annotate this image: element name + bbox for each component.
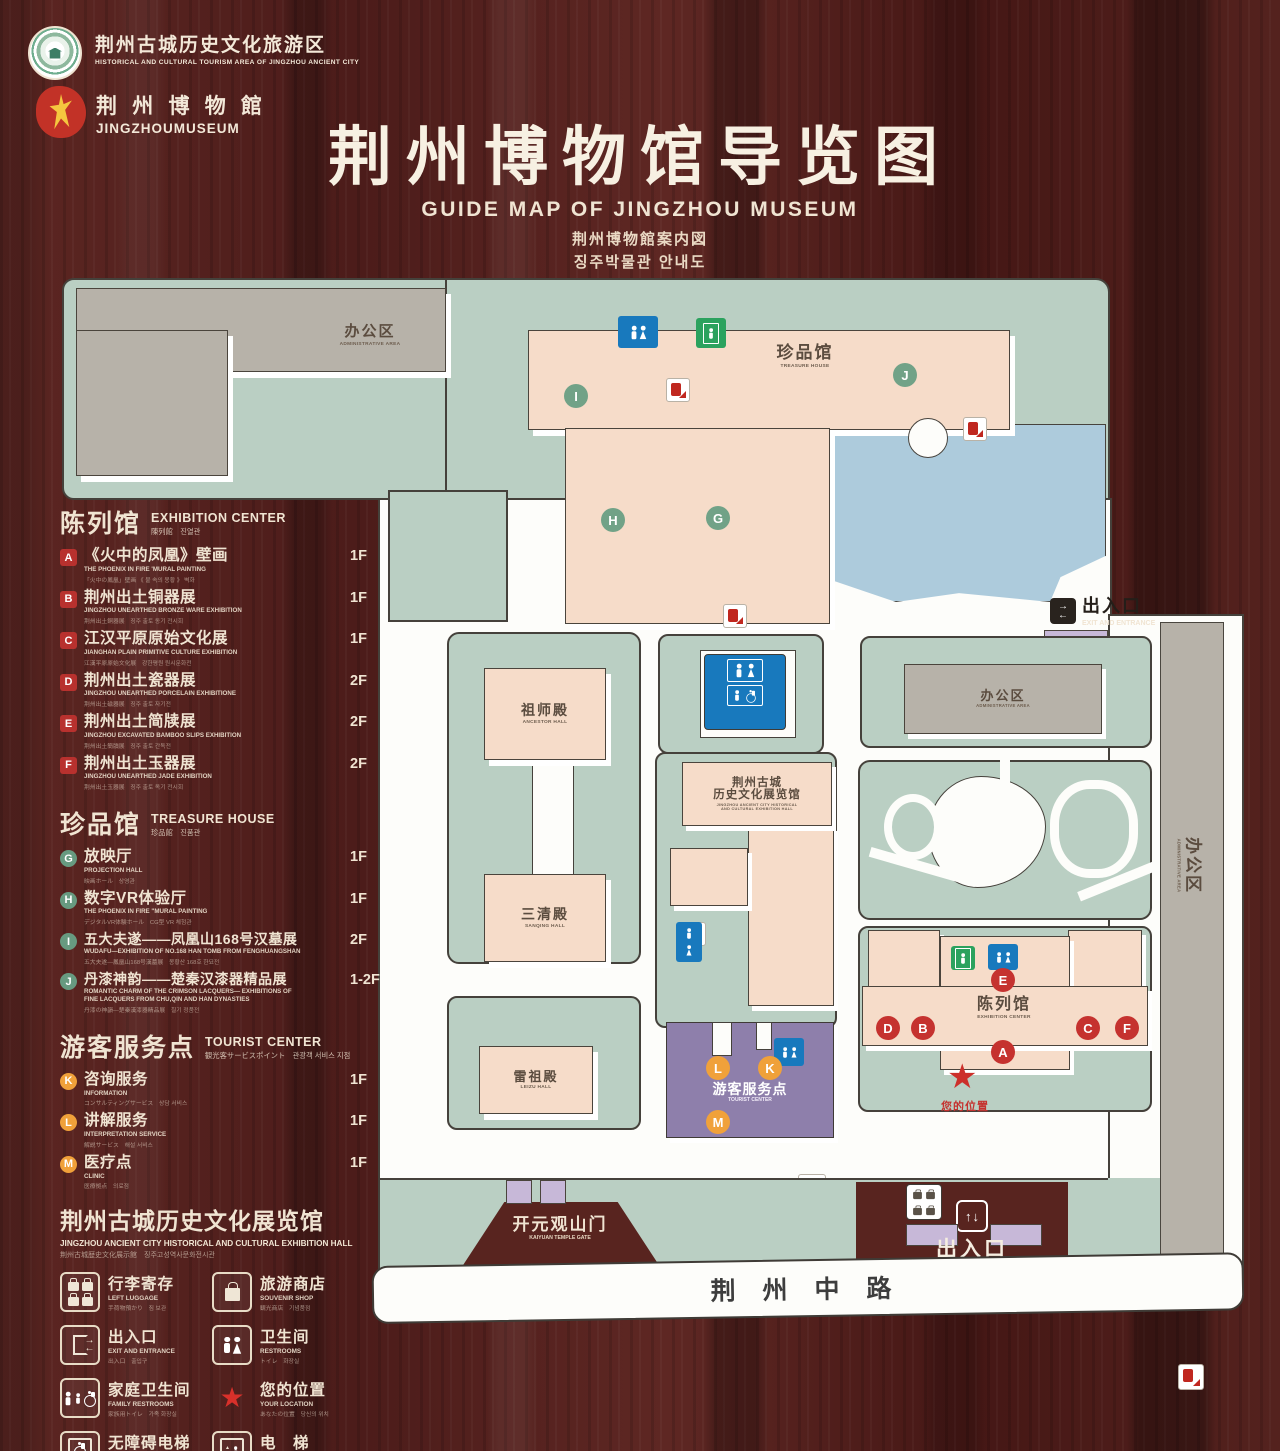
tourist-center-label-en: TOURIST CENTER — [688, 1098, 812, 1104]
section-title-zh: 陈列馆 — [60, 504, 141, 540]
item-en: THE PHOENIX IN FIRE 'MURAL PAINTING — [84, 566, 228, 574]
item-floor: 1F — [350, 548, 386, 564]
item-en: JINGZHOU UNEARTHED JADE EXHIBITION — [84, 773, 212, 781]
item-zh: 讲解服务 — [84, 1113, 166, 1129]
item-sub: 「火中の鳳凰」壁画 《 불 속의 봉황 》 벽화 — [84, 575, 228, 584]
tourist-center-notch — [756, 1022, 772, 1050]
treasure-house-arc — [908, 418, 948, 458]
admin-topleft-label-zh: 办公区 — [300, 324, 440, 341]
item-en: JINGZHOU UNEARTHED PORCELAIN EXHIBITIONE — [84, 690, 236, 698]
item-en: THE PHOENIX IN FIRE "MURAL PAINTING — [84, 908, 207, 916]
item-badge: F — [60, 757, 77, 774]
left-luggage-icon — [906, 1184, 942, 1220]
item-badge: J — [60, 973, 77, 990]
map-marker-F: F — [1115, 1016, 1139, 1040]
symbol-zh: 家庭卫生间 — [108, 1378, 191, 1400]
symbol-zh: 旅游商店 — [260, 1272, 326, 1294]
legend-panel: 陈列馆 EXHIBITION CENTER 陳列館 진열관 A 《火中的凤凰》壁… — [60, 496, 386, 1451]
map-marker-G: G — [706, 506, 730, 530]
legend-item-G: G 放映厅PROJECTION HALL映画ホール 상영관 1F — [60, 849, 386, 885]
map-marker-L: L — [706, 1056, 730, 1080]
section-title-sub: 陳列館 진열관 — [151, 527, 286, 537]
item-badge: L — [60, 1114, 77, 1131]
tourist-center-notch — [712, 1022, 732, 1056]
item-en: CLINIC — [84, 1173, 132, 1181]
legend-section-treasure-house: 珍品馆 TREASURE HOUSE 珍品館 진품관 — [60, 805, 386, 841]
garden-path — [1000, 758, 1010, 792]
item-sub: 解説サービス 해설 서비스 — [84, 1140, 166, 1149]
item-zh: 荆州出土玉器展 — [84, 756, 212, 772]
map-marker-J: J — [893, 363, 917, 387]
exhibition-center-label-en: EXHIBITION CENTER — [944, 1015, 1064, 1020]
left-luggage-icon — [60, 1272, 100, 1312]
symbol-zh: 卫生间 — [260, 1325, 310, 1347]
left-luggage-icon — [963, 417, 987, 441]
legend-item-K: K 咨询服务INFORMATIONコンサルティングサービス 상담 서비스 1F — [60, 1072, 386, 1108]
item-sub: 映画ホール 상영관 — [84, 876, 142, 885]
building-exhibition-center-armL — [868, 930, 940, 988]
item-en: JINGZHOU UNEARTHED BRONZE WARE EXHIBITIO… — [84, 607, 242, 615]
symbol-sub: 観光商店 기념품점 — [260, 1303, 326, 1312]
legend-section-exhibition-center: 陈列馆 EXHIBITION CENTER 陳列館 진열관 — [60, 504, 386, 540]
item-en: ROMANTIC CHARM OF THE CRIMSON LACQUERS— … — [84, 988, 304, 1004]
item-zh: 丹漆神韵——楚秦汉漆器精品展 — [84, 972, 304, 987]
item-zh: 《火中的凤凰》壁画 — [84, 548, 228, 564]
map-marker-C: C — [1076, 1016, 1100, 1040]
legend-item-B: B 荆州出土铜器展JINGZHOU UNEARTHED BRONZE WARE … — [60, 590, 386, 626]
symbol-sub: あなたの位置 당신의 위치 — [260, 1409, 329, 1418]
symbol-en: SOUVENIR SHOP — [260, 1295, 326, 1302]
section-title-sub: 観光客サービスポイント 관광객 서비스 지점 — [205, 1051, 350, 1061]
building-sanqing-hall: 三清殿 SANQING HALL — [484, 874, 606, 962]
exhibition-hall-label-en2: AND CULTURAL EXHIBITION HALL — [713, 807, 801, 811]
item-badge: E — [60, 715, 77, 732]
left-luggage-icon — [723, 604, 747, 628]
left-luggage-icon — [1178, 1364, 1204, 1390]
path-corridor — [532, 756, 574, 882]
restroom-mf-icon — [727, 659, 763, 682]
gate-pillar — [540, 1180, 566, 1204]
page-subtitle-en: GUIDE MAP OF JINGZHOU MUSEUM — [180, 198, 1100, 222]
symbol-en: EXIT AND ENTRANCE — [108, 1348, 175, 1355]
item-sub: 五大夫遂—鳳凰山168号漢墓展 봉황산 168호 한묘전 — [84, 957, 300, 966]
legend-restrooms: 卫生间RESTROOMSトイレ 화장실 — [212, 1325, 380, 1369]
page-subtitle-jp: 荆州博物館案内図 — [180, 228, 1100, 249]
symbol-sub: 家族用トイレ 가족 화장실 — [108, 1409, 191, 1418]
gate-pillar — [506, 1180, 532, 1204]
elevator-icon: ▲▼ — [212, 1431, 252, 1451]
item-badge: C — [60, 632, 77, 649]
building-exhibition-hall-bar: 荆州古城 历史文化展览馆 JINGZHOU ANCIENT CITY HISTO… — [682, 762, 832, 826]
item-en: PROJECTION HALL — [84, 867, 142, 875]
office-strip-label-en: ADMINISTRATIVE AREA — [1177, 826, 1182, 906]
page-title: 荆州博物馆导览图 — [180, 106, 1100, 198]
map-marker-K: K — [758, 1056, 782, 1080]
gate-label-zh: 开元观山门 — [470, 1216, 650, 1235]
left-luggage-icon — [666, 378, 690, 402]
map-marker-E: E — [991, 968, 1015, 992]
item-en: JIANGHAN PLAIN PRIMITIVE CULTURE EXHIBIT… — [84, 649, 237, 657]
symbol-zh: 出入口 — [108, 1325, 175, 1347]
item-floor: 1-2F — [350, 972, 386, 988]
shopping-bag-icon — [212, 1272, 252, 1312]
item-badge: K — [60, 1073, 77, 1090]
item-sub: コンサルティングサービス 상담 서비스 — [84, 1098, 187, 1107]
item-badge: B — [60, 591, 77, 608]
exhibition-hall-label-zh2: 历史文化展览馆 — [713, 789, 801, 802]
item-sub: 荆州出土銅器展 징주 출토 동기 전시회 — [84, 616, 242, 625]
area-logo-emblem-icon — [28, 26, 82, 80]
section-title-en: TREASURE HOUSE — [151, 812, 275, 826]
map-marker-A: A — [991, 1040, 1015, 1064]
exhibition-hall-label-zh1: 荆州古城 — [713, 777, 801, 790]
office-strip-label: 办公区 ADMINISTRATIVE AREA — [1177, 826, 1208, 906]
item-floor: 1F — [350, 590, 386, 606]
map-marker-M: M — [706, 1110, 730, 1134]
symbol-en: LEFT LUGGAGE — [108, 1295, 174, 1302]
item-sub: 荆州出土簡牘展 징주 출토 간독전 — [84, 741, 241, 750]
section-title-zh: 游客服务点 — [60, 1028, 195, 1064]
accessible-elevator-icon — [60, 1431, 100, 1451]
family-restroom-icon — [60, 1378, 100, 1418]
exhibition-center-label: 陈列馆 EXHIBITION CENTER — [944, 996, 1064, 1020]
symbol-sub: トイレ 화장실 — [260, 1356, 310, 1365]
legend-left-luggage: 行李寄存LEFT LUGGAGE手荷物預かり 짐 보관 — [60, 1272, 212, 1316]
exit-icon: →← — [60, 1325, 100, 1365]
road-label: 荆 州 中 路 — [710, 1269, 901, 1308]
restroom-icon — [704, 654, 786, 730]
item-sub: 荆州出土玉器展 징주 출토 옥기 전시회 — [84, 782, 212, 791]
map-zone-left-column — [388, 490, 508, 622]
admin-right-label-en: ADMINISTRATIVE AREA — [976, 704, 1030, 709]
map-marker-H: H — [601, 508, 625, 532]
treasure-house-label-zh: 珍品馆 — [745, 344, 865, 363]
item-en: INTERPRETATION SERVICE — [84, 1131, 166, 1139]
office-strip — [1160, 622, 1224, 1290]
restroom-icon — [988, 944, 1018, 970]
leizu-hall-label-en: LEIZU HALL — [513, 1085, 558, 1090]
legend-item-E: E 荆州出土简牍展JINGZHOU EXCAVATED BAMBOO SLIPS… — [60, 714, 386, 750]
museum-logo — [36, 86, 86, 138]
item-floor: 1F — [350, 1113, 386, 1129]
item-zh: 五大夫遂——凤凰山168号汉墓展 — [84, 932, 300, 947]
hall-title-en: JINGZHOU ANCIENT CITY HISTORICAL AND CUL… — [60, 1239, 386, 1248]
exit-icon: →← — [1050, 598, 1076, 624]
treasure-house-label-en: TREASURE HOUSE — [745, 364, 865, 369]
item-badge: H — [60, 892, 77, 909]
item-badge: A — [60, 549, 77, 566]
item-zh: 江汉平原原始文化展 — [84, 631, 237, 647]
building-tourist-center — [666, 1022, 834, 1138]
item-zh: 荆州出土简牍展 — [84, 714, 241, 730]
building-exhibition-center-armR — [1068, 930, 1142, 988]
family-restroom-icon — [727, 685, 763, 706]
garden-loop-east — [1050, 780, 1138, 878]
exit-right-label-zh: 出入口 — [1082, 592, 1192, 618]
ancestor-hall-label-zh: 祖师殿 — [521, 703, 569, 718]
legend-your-location: ★ 您的位置YOUR LOCATIONあなたの位置 당신의 위치 — [212, 1378, 380, 1422]
road-band: 荆 州 中 路 — [372, 1252, 1245, 1324]
exit-right-label-en: EXIT AND ENTRANCE — [1082, 620, 1192, 627]
elevator-icon — [696, 318, 726, 348]
page-subtitle-kr: 징주박물관 안내도 — [180, 251, 1100, 272]
item-badge: M — [60, 1156, 77, 1173]
legend-item-A: A 《火中的凤凰》壁画THE PHOENIX IN FIRE 'MURAL PA… — [60, 548, 386, 584]
legend-accessible-elevator: 无障碍电梯ACCESSIBLE ELEVATORバリアフリーエレベーター 무장애… — [60, 1431, 212, 1451]
legend-section-tourist-center: 游客服务点 TOURIST CENTER 観光客サービスポイント 관광객 서비스… — [60, 1028, 386, 1064]
item-sub: デジタルVR体験ホール CG型 VR 체험관 — [84, 917, 207, 926]
legend-souvenir-shop: 旅游商店SOUVENIR SHOP観光商店 기념품점 — [212, 1272, 380, 1316]
area-logo-zh: 荆州古城历史文化旅游区 — [95, 30, 359, 57]
symbol-en: FAMILY RESTROOMS — [108, 1401, 191, 1408]
garden-loop-west — [884, 794, 942, 860]
restroom-icon — [618, 316, 658, 348]
building-ancestor-hall: 祖师殿 ANCESTOR HALL — [484, 668, 606, 760]
symbol-zh: 电 梯 — [260, 1431, 327, 1451]
your-location-icon: ★ — [212, 1378, 252, 1418]
legend-item-M: M 医疗点CLINIC医療拠点 의료점 1F — [60, 1155, 386, 1191]
item-floor: 1F — [350, 849, 386, 865]
item-floor: 2F — [350, 932, 386, 948]
item-floor: 1F — [350, 891, 386, 907]
tourist-center-label: 游客服务点 TOURIST CENTER — [688, 1082, 812, 1104]
legend-item-H: H 数字VR体验厅THE PHOENIX IN FIRE "MURAL PAIN… — [60, 891, 386, 927]
building-admin-topleft-wing — [76, 330, 228, 476]
ancestor-hall-label-en: ANCESTOR HALL — [521, 720, 569, 725]
exit-icon: ↑↓ — [956, 1200, 988, 1232]
museum-logo-phoenix-icon — [36, 86, 86, 138]
office-strip-label-zh: 办公区 — [1184, 837, 1203, 894]
legend-item-I: I 五大夫遂——凤凰山168号汉墓展WUDAFU—EXHIBITION OF N… — [60, 932, 386, 966]
admin-topleft-label: 办公区 ADMINISTRATIVE AREA — [300, 324, 440, 347]
item-zh: 数字VR体验厅 — [84, 891, 207, 907]
area-logo — [28, 26, 82, 80]
item-floor: 2F — [350, 673, 386, 689]
item-en: INFORMATION — [84, 1090, 187, 1098]
symbol-zh: 无障碍电梯 — [108, 1431, 212, 1451]
exit-right-label: 出入口 EXIT AND ENTRANCE — [1082, 592, 1192, 627]
symbol-zh: 行李寄存 — [108, 1272, 174, 1294]
your-location-label: 您的位置 — [925, 1098, 1005, 1114]
item-floor: 1F — [350, 631, 386, 647]
admin-right-label-zh: 办公区 — [976, 689, 1030, 703]
map-marker-B: B — [911, 1016, 935, 1040]
item-badge: I — [60, 933, 77, 950]
item-sub: 丹漆の神韻—楚秦漢漆器精品展 칠기 정품전 — [84, 1005, 304, 1014]
restroom-icon — [676, 922, 702, 962]
building-admin-right: 办公区 ADMINISTRATIVE AREA — [904, 664, 1102, 734]
building-exhibition-hall-annex — [670, 848, 748, 906]
section-title-sub: 珍品館 진품관 — [151, 828, 275, 838]
item-zh: 医疗点 — [84, 1155, 132, 1171]
item-en: WUDAFU—EXHIBITION OF NO.168 HAN TOMB FRO… — [84, 948, 300, 956]
symbol-sub: 出入口 출입구 — [108, 1356, 175, 1365]
map-marker-I: I — [564, 384, 588, 408]
item-sub: 荆州出土磁器展 징주 출토 자기전 — [84, 699, 236, 708]
map-marker-D: D — [876, 1016, 900, 1040]
section-title-en: EXHIBITION CENTER — [151, 511, 286, 525]
legend-exit: →← 出入口EXIT AND ENTRANCE出入口 출입구 — [60, 1325, 212, 1369]
legend-item-L: L 讲解服务INTERPRETATION SERVICE解説サービス 해설 서비… — [60, 1113, 386, 1149]
guide-map-poster: 荆州古城历史文化旅游区 HISTORICAL AND CULTURAL TOUR… — [0, 0, 1280, 1451]
legend-item-C: C 江汉平原原始文化展JIANGHAN PLAIN PRIMITIVE CULT… — [60, 631, 386, 667]
restroom-icon — [212, 1325, 252, 1365]
leizu-hall-label-zh: 雷祖殿 — [513, 1070, 558, 1084]
legend-elevator: ▲▼ 电 梯ELEVATORエレベーター 엘리베이터 — [212, 1431, 380, 1451]
item-zh: 荆州出土瓷器展 — [84, 673, 236, 689]
item-floor: 1F — [350, 1155, 386, 1171]
symbol-sub: 手荷物預かり 짐 보관 — [108, 1303, 174, 1312]
item-floor: 2F — [350, 714, 386, 730]
exhibition-center-label-zh: 陈列馆 — [944, 996, 1064, 1014]
symbol-zh: 您的位置 — [260, 1378, 329, 1400]
building-leizu-hall: 雷祖殿 LEIZU HALL — [479, 1046, 593, 1114]
legend-item-F: F 荆州出土玉器展JINGZHOU UNEARTHED JADE EXHIBIT… — [60, 756, 386, 792]
gate-label: 开元观山门 KAIYUAN TEMPLE GATE — [470, 1216, 650, 1241]
item-sub: 医療拠点 의료점 — [84, 1181, 132, 1190]
admin-topleft-label-en: ADMINISTRATIVE AREA — [300, 342, 440, 347]
sanqing-hall-label-en: SANQING HALL — [521, 924, 569, 929]
symbol-en: RESTROOMS — [260, 1348, 310, 1355]
item-badge: D — [60, 674, 77, 691]
symbol-en: YOUR LOCATION — [260, 1401, 329, 1408]
item-sub: 江漢平原原始文化展 강한평원 원시문화전 — [84, 658, 237, 667]
symbol-legend: 行李寄存LEFT LUGGAGE手荷物預かり 짐 보관 旅游商店SOUVENIR… — [60, 1272, 386, 1451]
legend-item-J: J 丹漆神韵——楚秦汉漆器精品展ROMANTIC CHARM OF THE CR… — [60, 972, 386, 1014]
hall-title-zh: 荆州古城历史文化展览馆 — [60, 1202, 386, 1236]
treasure-house-label: 珍品馆 TREASURE HOUSE — [745, 344, 865, 369]
legend-family-restrooms: 家庭卫生间FAMILY RESTROOMS家族用トイレ 가족 화장실 — [60, 1378, 212, 1422]
item-zh: 荆州出土铜器展 — [84, 590, 242, 606]
building-exhibition-hall-wing — [748, 826, 834, 1006]
item-zh: 咨询服务 — [84, 1072, 187, 1088]
area-logo-en: HISTORICAL AND CULTURAL TOURISM AREA OF … — [95, 59, 359, 66]
item-floor: 1F — [350, 1072, 386, 1088]
area-logo-text: 荆州古城历史文化旅游区 HISTORICAL AND CULTURAL TOUR… — [95, 30, 359, 66]
tourist-center-label-zh: 游客服务点 — [688, 1082, 812, 1097]
item-zh: 放映厅 — [84, 849, 142, 865]
gate-label-en: KAIYUAN TEMPLE GATE — [470, 1236, 650, 1242]
your-location-icon: ★ — [947, 1060, 977, 1094]
item-en: JINGZHOU EXCAVATED BAMBOO SLIPS EXHIBITI… — [84, 732, 241, 740]
section-title-zh: 珍品馆 — [60, 805, 141, 841]
elevator-icon — [951, 946, 975, 970]
section-title-en: TOURIST CENTER — [205, 1035, 350, 1049]
legend-item-D: D 荆州出土瓷器展JINGZHOU UNEARTHED PORCELAIN EX… — [60, 673, 386, 709]
item-badge: G — [60, 850, 77, 867]
hall-title-sub: 荆州古城歴史文化展示館 징주고성역사문화전시관 — [60, 1250, 386, 1260]
sanqing-hall-label-zh: 三清殿 — [521, 907, 569, 922]
item-floor: 2F — [350, 756, 386, 772]
